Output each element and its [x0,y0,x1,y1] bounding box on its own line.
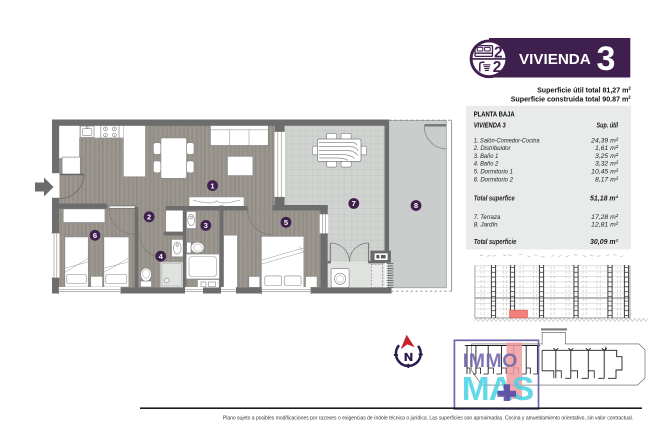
svg-text:6: 6 [93,231,97,240]
svg-text:3: 3 [204,221,208,230]
svg-text:IMMO: IMMO [463,350,518,372]
svg-text:Total superficie: Total superficie [474,239,517,246]
svg-text:1,61 m²: 1,61 m² [595,145,619,152]
svg-text:Plano sujeto a posibles modifi: Plano sujeto a posibles modificaciones p… [223,416,633,422]
svg-text:2. Distribuidor: 2. Distribuidor [473,145,511,152]
svg-text:6. Dormitorio 2: 6. Dormitorio 2 [474,176,513,183]
svg-text:3,25 m²: 3,25 m² [595,153,619,160]
svg-text:Superficie construida total 90: Superficie construida total 90.87 m² [511,94,631,103]
svg-text:4. Baño 2: 4. Baño 2 [474,161,499,168]
svg-text:PLANTA BAJA: PLANTA BAJA [474,110,516,119]
svg-text:17,28 m²: 17,28 m² [591,214,619,221]
svg-text:Sup. útil: Sup. útil [597,123,619,130]
svg-text:VIVIENDA: VIVIENDA [519,51,591,68]
svg-text:3,32 m²: 3,32 m² [595,161,619,168]
svg-text:Superficie útil total 81,27 m²: Superficie útil total 81,27 m² [537,85,631,94]
svg-text:8: 8 [414,201,418,210]
svg-text:2: 2 [147,213,151,222]
svg-text:8,17 m²: 8,17 m² [595,176,619,183]
svg-text:12,81 m²: 12,81 m² [591,222,619,229]
svg-text:51,18 m²: 51,18 m² [590,195,619,202]
svg-text:Total superfice: Total superfice [474,195,515,202]
svg-text:10,45 m²: 10,45 m² [591,169,619,176]
svg-text:1. Salón-Comedor-Cocina: 1. Salón-Comedor-Cocina [474,137,540,144]
svg-text:MAS: MAS [462,371,534,408]
svg-text:VIVIENDA 3: VIVIENDA 3 [474,123,506,130]
svg-text:3. Baño 1: 3. Baño 1 [474,153,499,160]
svg-text:5. Dormitorio 1: 5. Dormitorio 1 [474,169,513,176]
svg-text:2: 2 [493,59,502,76]
svg-text:7: 7 [352,199,356,208]
svg-text:3: 3 [597,40,616,78]
svg-text:24,39 m²: 24,39 m² [590,137,619,144]
svg-text:8. Jardín: 8. Jardín [474,222,498,229]
svg-text:7. Terraza: 7. Terraza [474,214,501,221]
svg-text:30,09 m²: 30,09 m² [590,239,619,246]
